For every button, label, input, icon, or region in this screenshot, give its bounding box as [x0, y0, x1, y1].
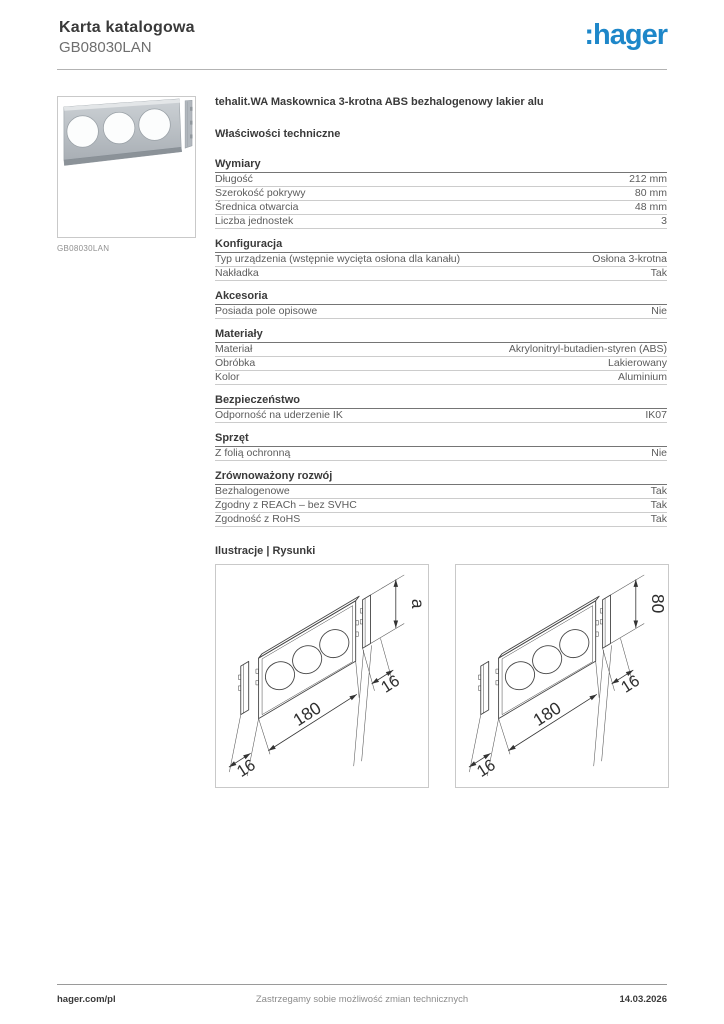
- technical-drawing-frame-2: 180 16 16: [455, 564, 669, 788]
- spec-group-sprzet: Sprzęt Z folią ochronną Nie: [215, 433, 667, 461]
- product-photo-caption: GB08030LAN: [57, 244, 196, 253]
- spec-row: Zgodny z REACh – bez SVHC Tak: [215, 499, 667, 513]
- spec-label: Nakładka: [215, 268, 269, 279]
- spec-value: Tak: [651, 514, 667, 525]
- dim-length-label: 180: [289, 698, 324, 730]
- spec-group-title: Konfiguracja: [215, 239, 667, 253]
- product-image-column: GB08030LAN: [57, 96, 196, 253]
- spec-label: Materiał: [215, 344, 262, 355]
- page-header: Karta katalogowa GB08030LAN :hager: [59, 19, 667, 56]
- dim-height-label: 80: [648, 594, 668, 613]
- spec-label: Odporność na uderzenie IK: [215, 410, 353, 421]
- datasheet-page: Karta katalogowa GB08030LAN :hager: [0, 0, 724, 1024]
- spec-value: Aluminium: [618, 372, 667, 383]
- dim-height-label: a: [408, 599, 428, 609]
- spec-value: 48 mm: [635, 202, 667, 213]
- technical-drawing-2: 180 16 16: [456, 565, 668, 787]
- technical-drawings: 180 16 16: [215, 564, 667, 788]
- spec-label: Typ urządzenia (wstępnie wycięta osłona …: [215, 254, 470, 265]
- spec-label: Posiada pole opisowe: [215, 306, 327, 317]
- document-type-title: Karta katalogowa: [59, 19, 195, 37]
- spec-label: Bezhalogenowe: [215, 486, 300, 497]
- spec-value: IK07: [645, 410, 667, 421]
- hager-logo: :hager: [584, 19, 667, 51]
- spec-group-title: Zrównoważony rozwój: [215, 471, 667, 485]
- spec-label: Zgodny z REACh – bez SVHC: [215, 500, 367, 511]
- product-photo: [58, 97, 195, 237]
- product-title: tehalit.WA Maskownica 3-krotna ABS bezha…: [215, 96, 667, 108]
- dim-side-right-label: 16: [378, 672, 403, 697]
- spec-value: Tak: [651, 500, 667, 511]
- technical-drawing-frame-1: 180 16 16: [215, 564, 429, 788]
- spec-value: Osłona 3-krotna: [592, 254, 667, 265]
- product-code-header: GB08030LAN: [59, 39, 195, 56]
- spec-row: Odporność na uderzenie IK IK07: [215, 409, 667, 423]
- properties-heading: Właściwości techniczne: [215, 129, 667, 140]
- spec-label: Długość: [215, 174, 263, 185]
- footer-website: hager.com/pl: [57, 994, 116, 1005]
- spec-value: 80 mm: [635, 188, 667, 199]
- spec-value: Lakierowany: [608, 358, 667, 369]
- spec-row: Średnica otwarcia 48 mm: [215, 201, 667, 215]
- footer-date: 14.03.2026: [619, 994, 667, 1005]
- spec-row: Liczba jednostek 3: [215, 215, 667, 229]
- spec-value: Akrylonitryl-butadien-styren (ABS): [509, 344, 667, 355]
- spec-row: Posiada pole opisowe Nie: [215, 305, 667, 319]
- header-titles: Karta katalogowa GB08030LAN: [59, 19, 195, 56]
- spec-row: Bezhalogenowe Tak: [215, 485, 667, 499]
- product-photo-frame: [57, 96, 196, 238]
- spec-label: Kolor: [215, 372, 250, 383]
- spec-value: Nie: [651, 306, 667, 317]
- spec-value: 3: [661, 216, 667, 227]
- spec-label: Z folią ochronną: [215, 448, 300, 459]
- spec-group-bezpieczenstwo: Bezpieczeństwo Odporność na uderzenie IK…: [215, 395, 667, 423]
- spec-row: Długość 212 mm: [215, 173, 667, 187]
- spec-group-title: Materiały: [215, 329, 667, 343]
- spec-value: 212 mm: [629, 174, 667, 185]
- header-divider: [57, 69, 667, 70]
- spec-group-title: Akcesoria: [215, 291, 667, 305]
- dim-side-right-label: 16: [618, 672, 643, 697]
- footer-disclaimer: Zastrzegamy sobie możliwość zmian techni…: [57, 994, 667, 1005]
- spec-group-akcesoria: Akcesoria Posiada pole opisowe Nie: [215, 291, 667, 319]
- dim-length-label: 180: [529, 698, 564, 730]
- spec-row: Z folią ochronną Nie: [215, 447, 667, 461]
- spec-row: Kolor Aluminium: [215, 371, 667, 385]
- spec-value: Tak: [651, 268, 667, 279]
- spec-group-materialy: Materiały Materiał Akrylonitryl-butadien…: [215, 329, 667, 385]
- illustrations-heading: Ilustracje | Rysunki: [215, 546, 667, 557]
- spec-row: Nakładka Tak: [215, 267, 667, 281]
- spec-group-title: Sprzęt: [215, 433, 667, 447]
- spec-group-konfiguracja: Konfiguracja Typ urządzenia (wstępnie wy…: [215, 239, 667, 281]
- spec-label: Obróbka: [215, 358, 265, 369]
- spec-row: Typ urządzenia (wstępnie wycięta osłona …: [215, 253, 667, 267]
- spec-group-zrownowazony-rozwoj: Zrównoważony rozwój Bezhalogenowe Tak Zg…: [215, 471, 667, 527]
- technical-drawing-1: 180 16 16: [216, 565, 428, 787]
- spec-label: Zgodność z RoHS: [215, 514, 310, 525]
- spec-label: Liczba jednostek: [215, 216, 303, 227]
- spec-content: tehalit.WA Maskownica 3-krotna ABS bezha…: [215, 96, 667, 788]
- page-footer: hager.com/pl Zastrzegamy sobie możliwość…: [57, 984, 667, 1005]
- spec-group-title: Bezpieczeństwo: [215, 395, 667, 409]
- spec-label: Średnica otwarcia: [215, 202, 308, 213]
- spec-row: Obróbka Lakierowany: [215, 357, 667, 371]
- spec-value: Tak: [651, 486, 667, 497]
- spec-row: Materiał Akrylonitryl-butadien-styren (A…: [215, 343, 667, 357]
- spec-label: Szerokość pokrywy: [215, 188, 315, 199]
- dim-side-left-label: 16: [234, 756, 259, 781]
- spec-row: Szerokość pokrywy 80 mm: [215, 187, 667, 201]
- spec-value: Nie: [651, 448, 667, 459]
- spec-group-wymiary: Wymiary Długość 212 mm Szerokość pokrywy…: [215, 159, 667, 229]
- spec-group-title: Wymiary: [215, 159, 667, 173]
- spec-row: Zgodność z RoHS Tak: [215, 513, 667, 527]
- dim-side-left-label: 16: [474, 756, 499, 781]
